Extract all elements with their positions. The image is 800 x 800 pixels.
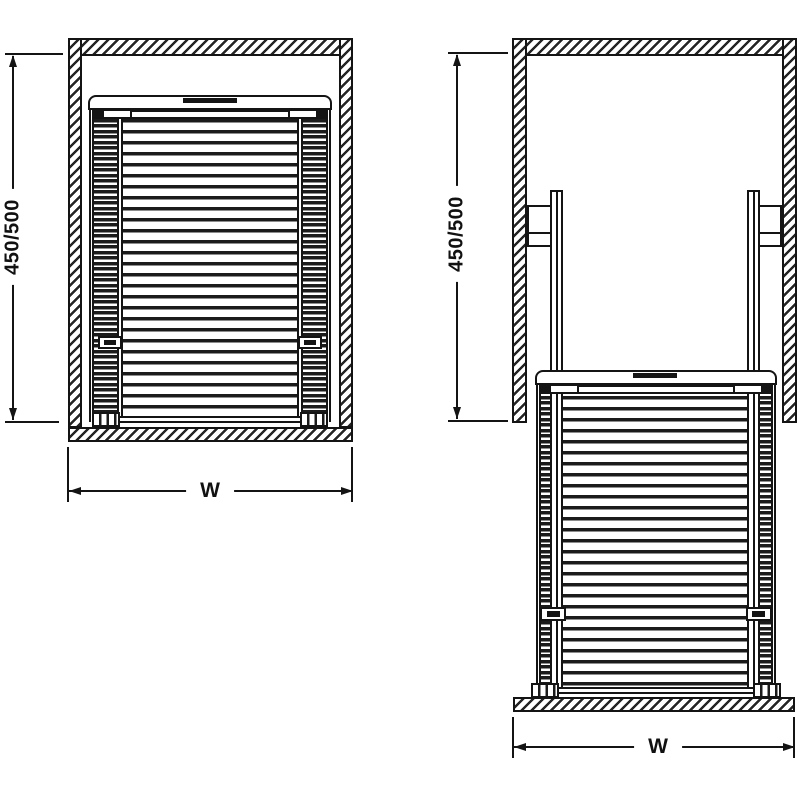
basket-sub-block-right-tab	[761, 386, 771, 392]
basket-sub-block-left-tab	[541, 386, 551, 392]
basket-wires	[541, 396, 776, 686]
basket-wires	[94, 119, 326, 415]
rail-clamp-right-detail	[752, 611, 765, 617]
arrow-right-icon	[341, 487, 353, 495]
cabinet-right-wall	[339, 38, 353, 428]
basket-foot-left	[531, 683, 559, 698]
basket-sub-block-right-tab	[316, 111, 326, 117]
arrow-left-icon	[514, 743, 526, 751]
technical-diagram: 450/500 W	[0, 0, 800, 800]
cabinet-bottom-panel	[68, 427, 353, 442]
cabinet-top-wall	[512, 38, 797, 56]
basket-foot-right	[300, 412, 328, 427]
basket-side-frame-right	[771, 377, 776, 692]
arrow-up-icon	[9, 55, 17, 67]
rail-clamp-left-detail	[104, 340, 116, 345]
basket-side-frame-left	[536, 377, 541, 692]
wall-bracket-left-divider	[527, 232, 552, 234]
height-extension-line-bottom	[5, 421, 59, 423]
base-board	[513, 697, 795, 712]
basket-wires-offset-right	[303, 124, 326, 412]
width-dimension-label: W	[186, 479, 234, 503]
arrow-right-icon	[783, 743, 795, 751]
arrow-up-icon	[453, 54, 461, 66]
height-extension-line-bottom	[448, 420, 508, 422]
arrow-left-icon	[69, 487, 81, 495]
width-extension-line-right	[793, 717, 795, 758]
basket-side-frame-right	[326, 102, 331, 422]
cabinet-right-wall	[782, 38, 797, 423]
wall-bracket-right	[757, 205, 782, 247]
slide-rail-left	[117, 108, 123, 420]
basket-sub-block-left-tab	[94, 111, 104, 117]
height-dimension-label: 450/500	[0, 189, 27, 285]
arrow-down-icon	[453, 407, 461, 419]
cabinet-left-wall	[68, 38, 82, 428]
basket-side-frame-left	[89, 102, 94, 422]
rail-clamp-right-detail	[304, 340, 316, 345]
basket-foot-right	[753, 683, 781, 698]
basket-handle-grip	[633, 373, 677, 378]
height-dimension-label: 450/500	[444, 186, 471, 282]
rail-clamp-left-detail	[547, 611, 560, 617]
basket-foot-left	[92, 412, 120, 427]
basket-bottom-bar	[100, 416, 320, 423]
width-extension-line-left	[512, 717, 514, 758]
cabinet-left-wall	[512, 38, 527, 423]
basket-handle-grip	[183, 98, 237, 103]
basket-bottom-bar	[552, 687, 760, 694]
arrow-down-icon	[9, 408, 17, 420]
cabinet-top-wall	[68, 38, 353, 56]
wall-bracket-left	[527, 205, 552, 247]
width-dimension-label: W	[634, 735, 682, 759]
wall-bracket-right-divider	[757, 232, 782, 234]
basket-wires-offset-left	[94, 124, 117, 412]
slide-rail-right	[297, 108, 303, 420]
